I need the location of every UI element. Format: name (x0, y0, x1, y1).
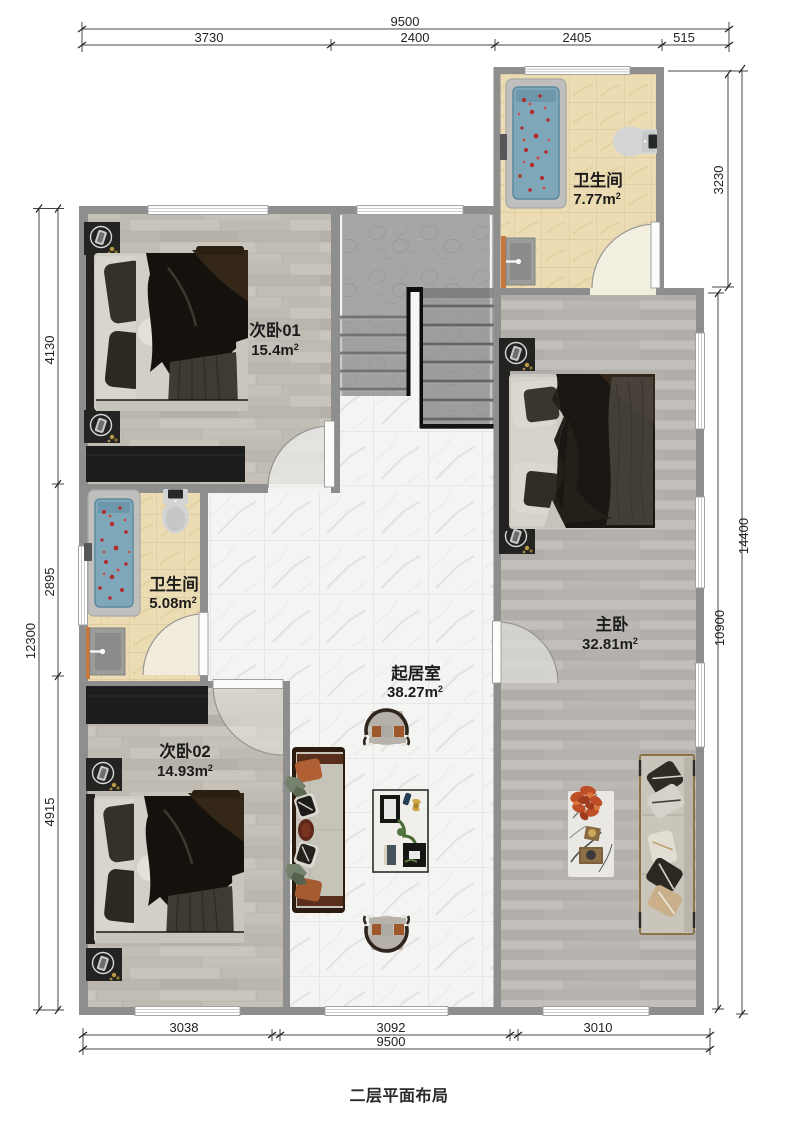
svg-text:9500: 9500 (377, 1034, 406, 1049)
svg-text:7.77m2: 7.77m2 (573, 191, 621, 208)
svg-text:9500: 9500 (391, 14, 420, 29)
svg-text:2895: 2895 (42, 568, 57, 597)
svg-text:14400: 14400 (736, 518, 751, 554)
svg-text:2405: 2405 (563, 30, 592, 45)
svg-text:2400: 2400 (401, 30, 430, 45)
svg-text:4915: 4915 (42, 798, 57, 827)
svg-text:3730: 3730 (195, 30, 224, 45)
svg-text:4130: 4130 (42, 336, 57, 365)
svg-text:3230: 3230 (711, 166, 726, 195)
svg-text:10900: 10900 (712, 610, 727, 646)
svg-text:515: 515 (673, 30, 695, 45)
svg-text:卫生间: 卫生间 (149, 574, 199, 594)
svg-text:二层平面布局: 二层平面布局 (349, 1086, 448, 1105)
svg-text:卫生间: 卫生间 (573, 170, 623, 190)
svg-text:3038: 3038 (170, 1020, 199, 1035)
svg-text:5.08m2: 5.08m2 (149, 595, 197, 612)
svg-text:38.27m2: 38.27m2 (387, 684, 443, 701)
svg-text:起居室: 起居室 (390, 663, 441, 683)
svg-text:14.93m2: 14.93m2 (157, 763, 213, 780)
svg-text:3010: 3010 (584, 1020, 613, 1035)
svg-text:15.4m2: 15.4m2 (251, 342, 299, 359)
svg-text:32.81m2: 32.81m2 (582, 636, 638, 653)
svg-text:12300: 12300 (23, 623, 38, 659)
svg-text:次卧01: 次卧01 (249, 320, 300, 340)
svg-text:主卧: 主卧 (596, 614, 630, 634)
svg-text:次卧02: 次卧02 (159, 741, 210, 761)
svg-text:3092: 3092 (377, 1020, 406, 1035)
